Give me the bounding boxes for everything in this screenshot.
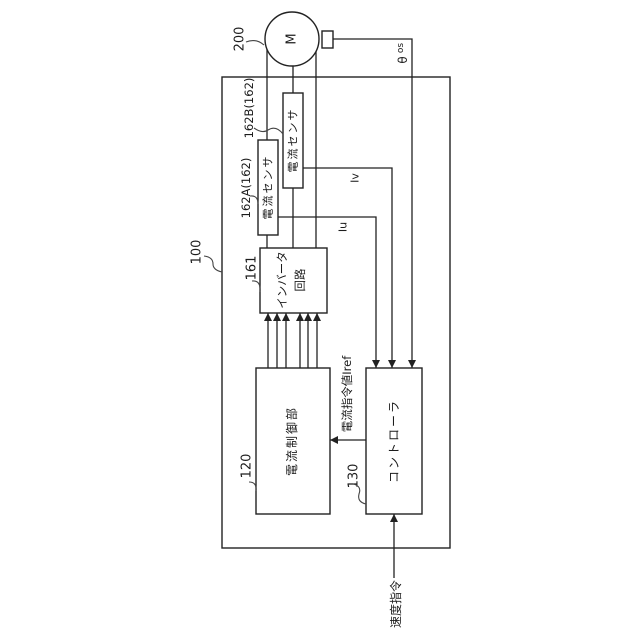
theta-os-signal-line bbox=[333, 39, 412, 368]
theta-symbol-label: θ bbox=[396, 56, 410, 63]
encoder-box bbox=[322, 31, 333, 48]
current-control-ref-label: 120 bbox=[240, 454, 255, 479]
motor-ref-label: 200 bbox=[233, 27, 248, 52]
inverter-label-line1: インバータ bbox=[275, 251, 289, 309]
inverter-label-line2: 回路 bbox=[293, 268, 307, 291]
system-ref-label: 100 bbox=[190, 240, 205, 265]
controller-label: コントローラ bbox=[387, 399, 401, 483]
current-command-label: 電流指令値Iref bbox=[340, 355, 354, 432]
current-sensor-b-label: 電流センサ bbox=[286, 108, 300, 173]
current-sensor-a-label: 電流センサ bbox=[261, 155, 275, 220]
sensor-b-ref-leader bbox=[254, 128, 283, 134]
sensor-b-ref-label: 162B(162) bbox=[242, 78, 256, 139]
theta-subscript-label: os bbox=[396, 43, 406, 54]
motor-control-block-diagram: M 電流センサ 電流センサ インバータ 回路 電流制御部 コントローラ 電流指令… bbox=[0, 0, 640, 640]
current-control-ref-leader bbox=[249, 482, 256, 491]
sensor-a-ref-label: 162A(162) bbox=[239, 158, 253, 219]
motor-ref-leader bbox=[246, 41, 264, 45]
iu-signal-label: Iu bbox=[337, 222, 350, 232]
inverter-ref-leader bbox=[252, 281, 260, 292]
gate-drive-arrows bbox=[268, 313, 317, 368]
speed-command-label: 速度指令 bbox=[388, 580, 403, 628]
iv-signal-label: Iv bbox=[349, 173, 362, 183]
current-control-label: 電流制御部 bbox=[284, 406, 299, 476]
system-ref-leader bbox=[204, 256, 222, 272]
inverter-ref-label: 161 bbox=[245, 256, 260, 281]
motor-label: M bbox=[285, 33, 300, 44]
